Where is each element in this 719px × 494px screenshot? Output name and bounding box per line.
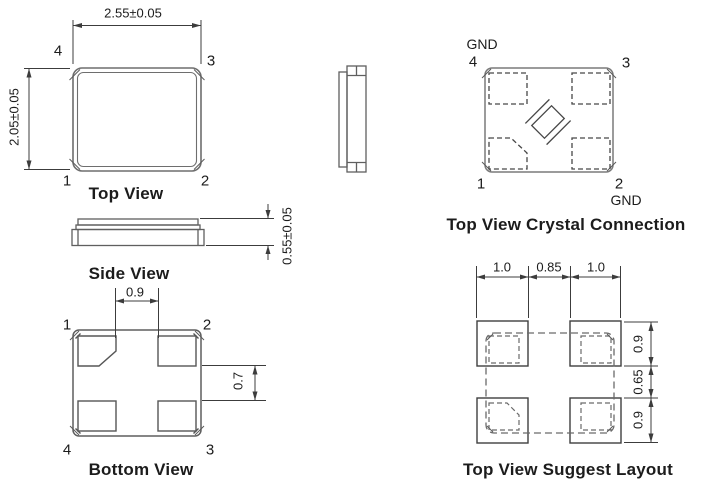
top-view-height-dimension <box>24 69 70 170</box>
bottom-view-pads <box>76 334 199 434</box>
suggest-layout-pad-notches <box>487 334 613 432</box>
bottom-view-gap-y-label: 0.7 <box>231 372 246 390</box>
crystal-connection-gnd-top-label: GND <box>466 36 497 52</box>
bottom-view-corner-notches <box>70 331 204 435</box>
crystal-connection-pin-1-label: 1 <box>477 176 485 193</box>
top-view-pin-3-label: 3 <box>207 53 215 70</box>
datasheet-drawing-page: 2.55±0.05 2.05±0.05 4 3 1 2 Top View 0.5… <box>0 0 719 494</box>
crystal-connection-drawing <box>482 68 616 172</box>
suggest-layout-package-pads <box>489 336 611 430</box>
top-view-title: Top View <box>89 184 164 204</box>
crystal-connection-pads <box>489 73 610 169</box>
suggest-layout-dim-right-pad-label: 1.0 <box>587 260 605 275</box>
bottom-view-pin-4-label: 4 <box>63 442 71 459</box>
side-view-height-dim-label: 0.55±0.05 <box>280 207 295 265</box>
suggest-layout-land-pads <box>477 321 621 443</box>
side-view-height-dimension <box>200 204 274 260</box>
suggest-layout-package-outline <box>486 333 614 433</box>
diagram-linework <box>0 0 719 494</box>
bottom-view-pin-2-label: 2 <box>203 317 211 334</box>
suggest-layout-dim-gap-y-label: 0.65 <box>631 369 646 394</box>
crystal-connection-title: Top View Crystal Connection <box>446 215 685 235</box>
bottom-view-pin-3-label: 3 <box>206 442 214 459</box>
bottom-view-title: Bottom View <box>89 460 194 480</box>
top-view-drawing <box>24 20 205 171</box>
suggest-layout-title: Top View Suggest Layout <box>463 460 673 480</box>
bottom-view-drawing <box>70 288 266 436</box>
top-view-width-dimension <box>73 20 201 64</box>
crystal-connection-pin-4-label: 4 <box>469 54 477 71</box>
top-view-width-dim-label: 2.55±0.05 <box>104 6 162 21</box>
crystal-connection-corner-notches <box>482 69 616 171</box>
crystal-connection-pin-3-label: 3 <box>622 55 630 72</box>
side-view-drawing <box>72 204 274 260</box>
crystal-connection-gnd-bottom-label: GND <box>610 192 641 208</box>
suggest-layout-dim-bottom-pad-label: 0.9 <box>631 411 646 429</box>
top-view-pin-1-label: 1 <box>63 173 71 190</box>
suggest-layout-dim-left-pad-label: 1.0 <box>493 260 511 275</box>
bottom-view-pin-1-label: 1 <box>63 317 71 334</box>
suggest-layout-dim-gap-x-label: 0.85 <box>536 260 561 275</box>
suggest-layout-dim-top-pad-label: 0.9 <box>631 335 646 353</box>
crystal-connection-pin-2-label: 2 <box>615 176 623 193</box>
bottom-view-gap-x-label: 0.9 <box>126 285 144 300</box>
top-view-pin-4-label: 4 <box>54 43 62 60</box>
side-view-title: Side View <box>89 264 170 284</box>
top-view-corner-notches <box>70 70 205 170</box>
top-view-height-dim-label: 2.05±0.05 <box>7 88 22 146</box>
crystal-symbol <box>525 99 570 144</box>
top-view-pin-2-label: 2 <box>201 173 209 190</box>
end-view-drawing <box>339 66 366 172</box>
